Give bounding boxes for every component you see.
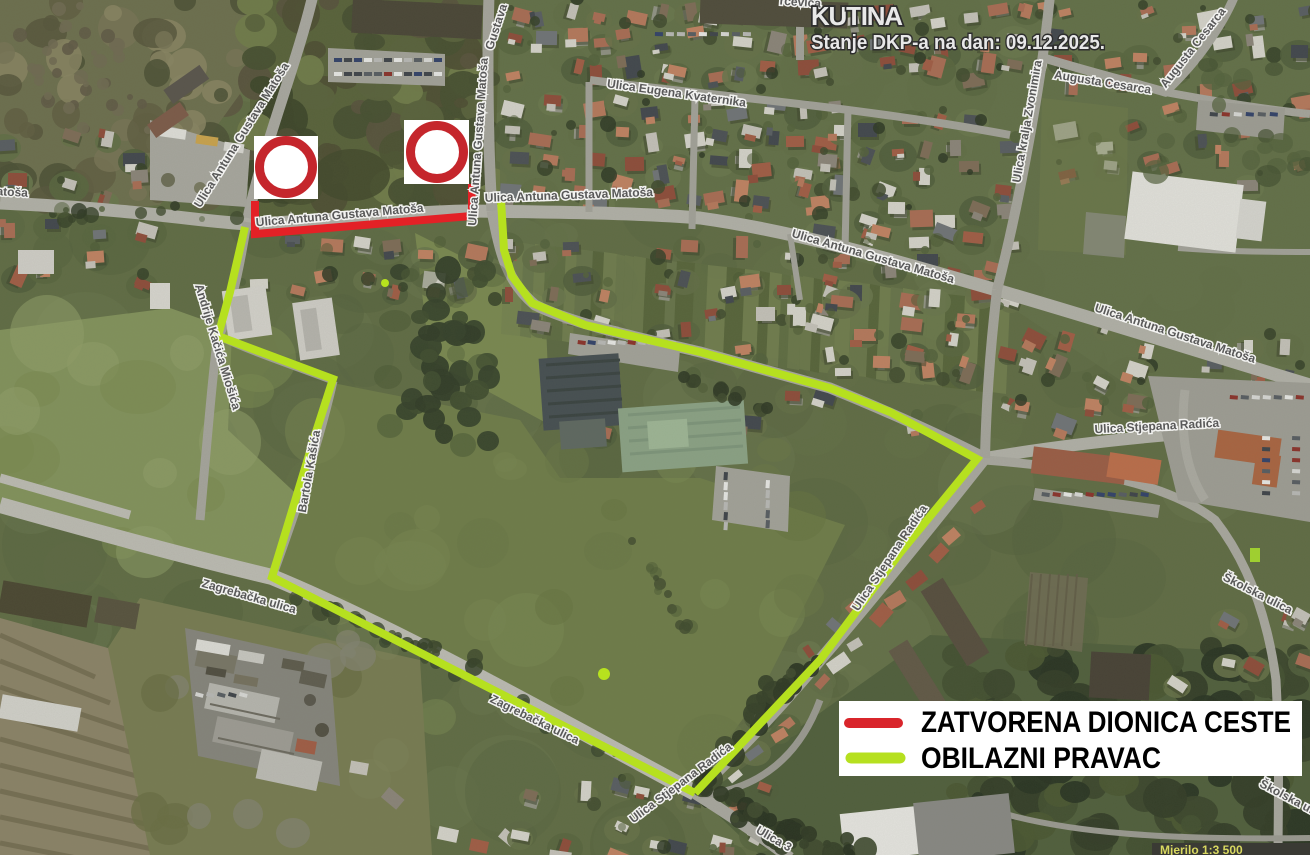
svg-text:atoša: atoša: [0, 184, 29, 200]
svg-text:Stanje DKP-a na dan: 09.12.202: Stanje DKP-a na dan: 09.12.2025.: [811, 32, 1105, 54]
svg-text:Mjerilo 1:3 500: Mjerilo 1:3 500: [1160, 843, 1243, 855]
svg-text:KUTINA: KUTINA: [811, 1, 903, 31]
svg-text:ZATVORENA DIONICA CESTE: ZATVORENA DIONICA CESTE: [921, 706, 1291, 739]
svg-text:OBILAZNI PRAVAC: OBILAZNI PRAVAC: [921, 742, 1161, 775]
